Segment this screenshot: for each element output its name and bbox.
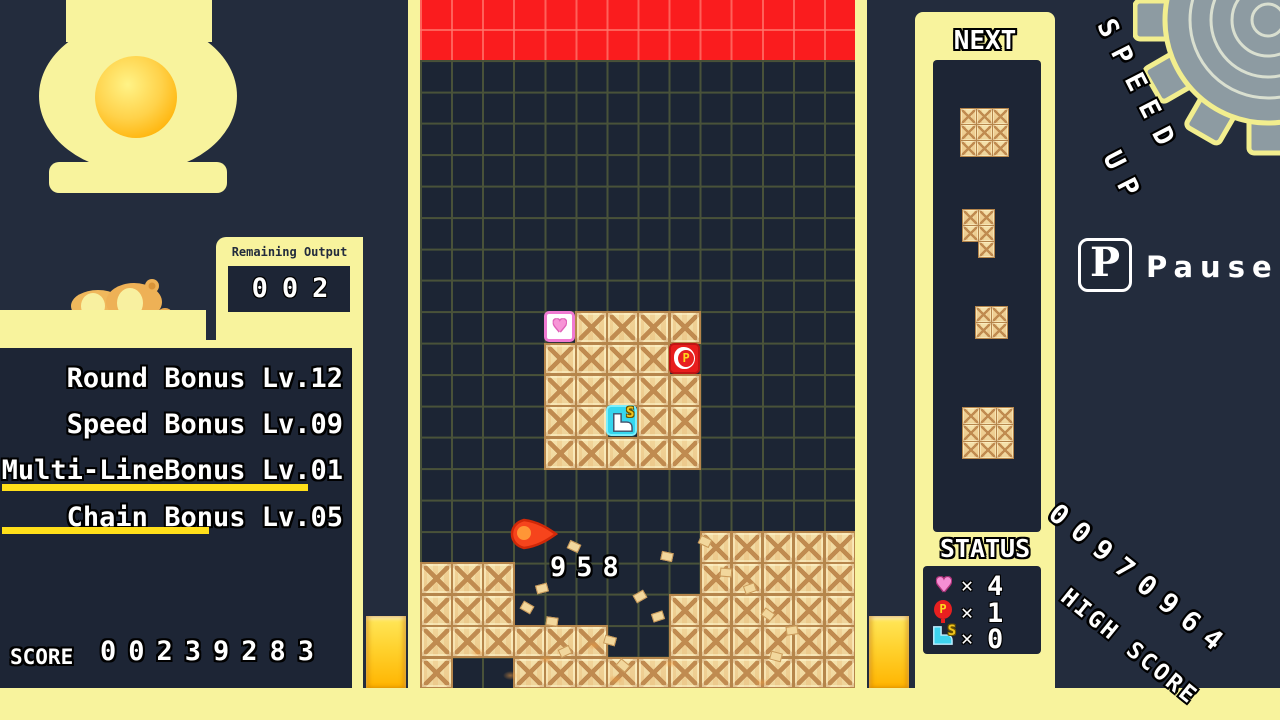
crate-block — [824, 625, 857, 658]
crate-block — [544, 405, 577, 438]
crate-block — [731, 594, 764, 627]
crate-block — [637, 437, 670, 470]
next-piece-cell — [960, 108, 977, 125]
score-value: 00239283 — [100, 636, 326, 667]
crate-block — [637, 311, 670, 344]
next-piece-cell — [979, 407, 997, 425]
crate-block — [606, 311, 639, 344]
status-row: S✕0 — [923, 624, 1041, 651]
next-piece-cell — [960, 140, 977, 157]
crate-block — [793, 562, 826, 595]
next-piece-cell — [976, 108, 993, 125]
crate-block — [824, 594, 857, 627]
crate-block — [669, 437, 702, 470]
crate-block — [824, 657, 857, 690]
dust-particle — [663, 659, 678, 668]
next-piece-cell — [962, 441, 980, 459]
remaining-output-label: Remaining Output — [222, 245, 357, 259]
debris-chip — [785, 625, 798, 636]
crate-block — [420, 625, 453, 658]
next-piece-cell — [978, 209, 995, 226]
crate-block — [420, 594, 453, 627]
crate-block — [575, 311, 608, 344]
board-wall-left — [408, 0, 420, 688]
crate-block — [762, 531, 795, 564]
crate-block — [793, 657, 826, 690]
next-piece-cell — [996, 424, 1014, 442]
crate-block — [793, 531, 826, 564]
next-label: NEXT — [915, 26, 1055, 56]
next-piece-cell — [991, 306, 1008, 323]
crate-block — [451, 562, 484, 595]
balloon-blob: P — [674, 347, 695, 369]
crate-block — [637, 343, 670, 376]
crate-block — [669, 311, 702, 344]
next-piece-cell — [975, 306, 992, 323]
crate-block — [575, 374, 608, 407]
bonus-row: Round Bonus Lv.12 — [0, 363, 343, 394]
playfield: ♥PS — [420, 0, 855, 688]
next-piece-cell — [960, 124, 977, 141]
speed-tag: S — [626, 405, 634, 421]
next-piece-cell — [978, 241, 995, 258]
crate-block — [544, 343, 577, 376]
status-row: ♥✕4 — [923, 571, 1041, 598]
right-gold-gauge — [869, 616, 909, 688]
crate-block — [575, 405, 608, 438]
pause-label: Pause — [1146, 250, 1279, 284]
remaining-output-value: 002 — [228, 273, 352, 304]
dust-particle — [503, 671, 518, 680]
crate-block — [700, 594, 733, 627]
crate-block — [544, 374, 577, 407]
crate-block — [762, 562, 795, 595]
next-piece-cell — [962, 225, 979, 242]
next-piece-cell — [962, 424, 980, 442]
speed-tag: S — [948, 623, 956, 639]
dust-particle — [470, 648, 485, 657]
balloon-knot — [941, 619, 945, 623]
bonus-underline — [2, 484, 308, 491]
pause-key-glyph: P — [1081, 239, 1129, 286]
crate-block — [731, 531, 764, 564]
boot-block: S — [606, 405, 637, 436]
crate-block — [606, 343, 639, 376]
bonus-row: Multi-LineBonus Lv.01 — [0, 455, 343, 486]
dust-particle — [608, 675, 623, 684]
status-label: STATUS — [915, 534, 1055, 563]
status-count: 0 — [987, 624, 1003, 655]
next-piece-cell — [996, 441, 1014, 459]
next-piece-cell — [992, 140, 1009, 157]
crate-block — [575, 343, 608, 376]
next-piece-cell — [992, 108, 1009, 125]
pause-button[interactable]: P — [1078, 238, 1132, 292]
board-wall-right — [855, 0, 867, 688]
bonus-panel-border — [0, 340, 352, 348]
p-balloon-block: P — [669, 343, 700, 374]
bonus-underline — [2, 527, 209, 534]
dust-particle — [539, 655, 554, 664]
next-piece-cell — [962, 209, 979, 226]
multiply-symbol: ✕ — [961, 573, 973, 597]
left-gold-gauge — [366, 616, 406, 688]
crate-block — [669, 405, 702, 438]
next-piece-cell — [976, 124, 993, 141]
crate-block — [700, 657, 733, 690]
heart-icon: ♥ — [931, 572, 957, 598]
p-balloon-glyph: P — [934, 600, 952, 619]
crate-block — [669, 625, 702, 658]
dust-particle — [586, 641, 601, 650]
game-screen: Remaining Output 002 Round Bonus Lv.12Sp… — [0, 0, 1280, 720]
crate-block — [606, 437, 639, 470]
status-box: ♥✕4P✕1S✕0 — [923, 566, 1041, 654]
debris-chip — [545, 616, 558, 627]
next-piece-cell — [979, 441, 997, 459]
next-piece-cell — [992, 124, 1009, 141]
p-balloon-icon: P — [931, 599, 957, 625]
next-piece-cell — [975, 322, 992, 339]
fireball-icon — [510, 518, 558, 550]
crate-block — [669, 374, 702, 407]
score-popup: 958 — [550, 552, 629, 583]
heart-block: ♥ — [544, 311, 575, 342]
crate-block — [482, 594, 515, 627]
debris-chip — [720, 567, 733, 577]
bonus-row: Speed Bonus Lv.09 — [0, 409, 343, 440]
crate-block — [451, 594, 484, 627]
crate-block — [482, 562, 515, 595]
crate-block — [482, 625, 515, 658]
crate-block — [575, 437, 608, 470]
heart-icon: ♥ — [547, 314, 572, 339]
multiply-symbol: ✕ — [961, 626, 973, 650]
crate-block — [669, 594, 702, 627]
multiply-symbol: ✕ — [961, 600, 973, 624]
crate-block — [606, 374, 639, 407]
score-label: SCORE — [10, 645, 73, 669]
crate-block — [700, 625, 733, 658]
crate-block — [793, 594, 826, 627]
crate-block — [420, 657, 453, 690]
crate-block — [513, 625, 546, 658]
crate-block — [544, 437, 577, 470]
crate-block — [637, 405, 670, 438]
next-piece-cell — [976, 140, 993, 157]
next-piece-cell — [979, 424, 997, 442]
next-piece-cell — [978, 225, 995, 242]
next-piece-cell — [962, 407, 980, 425]
shelf — [0, 310, 206, 340]
floor — [0, 688, 1280, 720]
danger-grid-line — [420, 29, 855, 31]
crate-block — [637, 374, 670, 407]
status-row: P✕1 — [923, 598, 1041, 625]
crate-block — [824, 562, 857, 595]
next-piece-cell — [991, 322, 1008, 339]
crate-block — [575, 657, 608, 690]
danger-zone — [420, 0, 855, 60]
dust-particle — [754, 678, 769, 687]
crate-block — [420, 562, 453, 595]
crate-block — [824, 531, 857, 564]
next-piece-cell — [996, 407, 1014, 425]
p-balloon-icon: P — [678, 350, 694, 367]
boot-icon: S — [931, 625, 957, 651]
crate-block — [731, 625, 764, 658]
lamp-icon — [35, 0, 240, 196]
